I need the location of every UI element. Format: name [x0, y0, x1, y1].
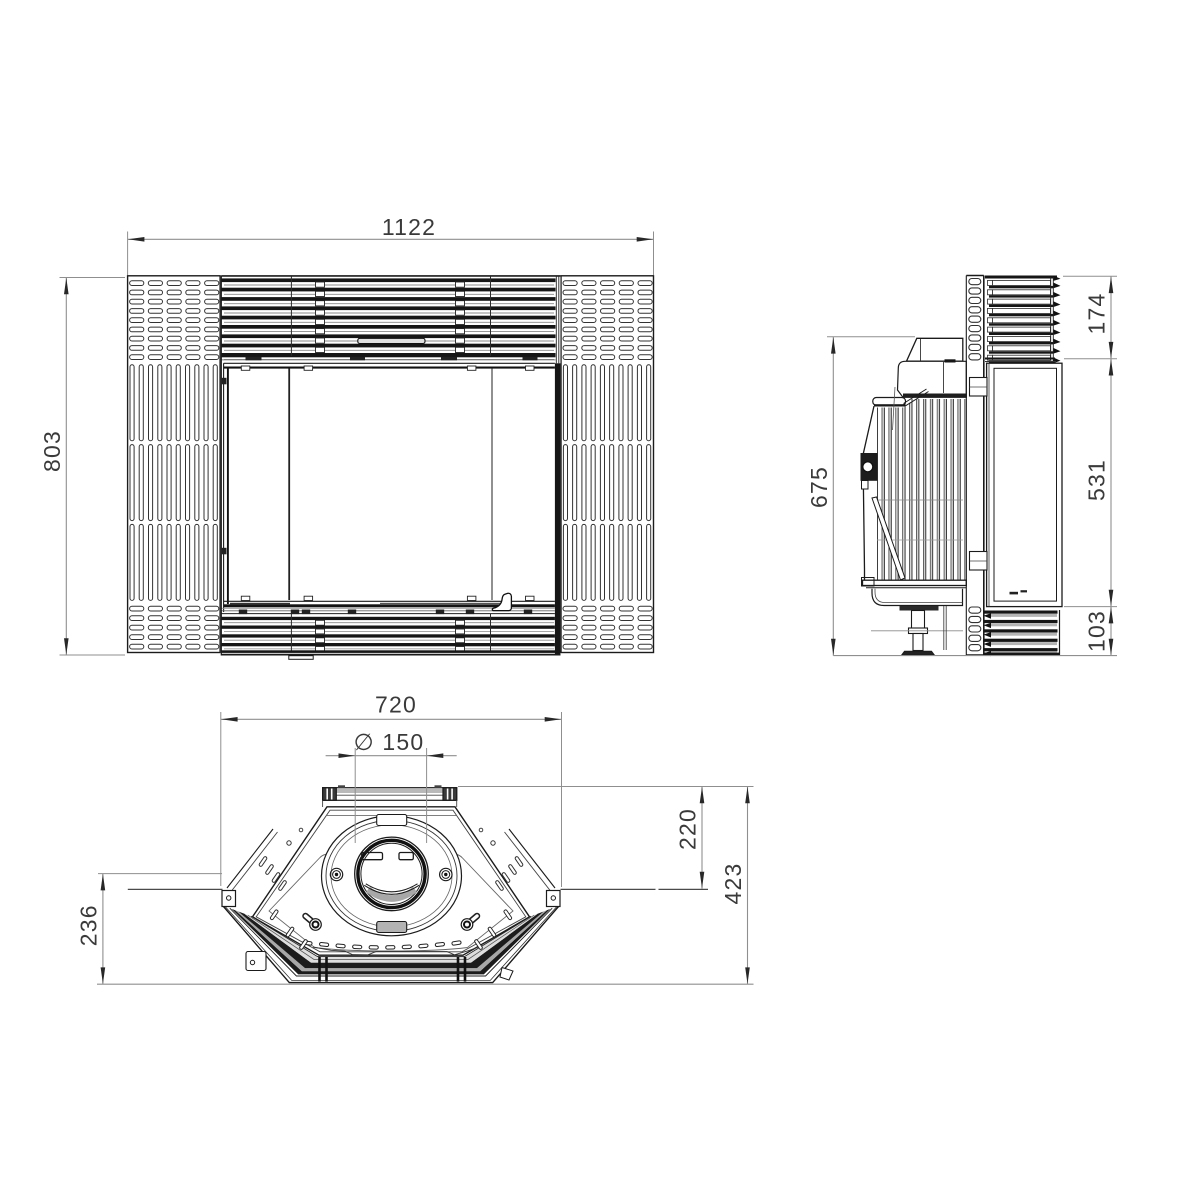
svg-text:174: 174: [1084, 293, 1110, 335]
svg-text:1122: 1122: [382, 214, 436, 240]
svg-text:∅ 150: ∅ 150: [354, 729, 425, 755]
svg-text:531: 531: [1084, 459, 1110, 501]
svg-text:236: 236: [75, 904, 101, 946]
svg-text:720: 720: [375, 692, 417, 718]
svg-text:220: 220: [674, 808, 700, 850]
svg-text:803: 803: [39, 430, 65, 472]
svg-text:675: 675: [806, 466, 832, 508]
svg-text:103: 103: [1084, 610, 1110, 652]
svg-text:423: 423: [720, 863, 746, 905]
